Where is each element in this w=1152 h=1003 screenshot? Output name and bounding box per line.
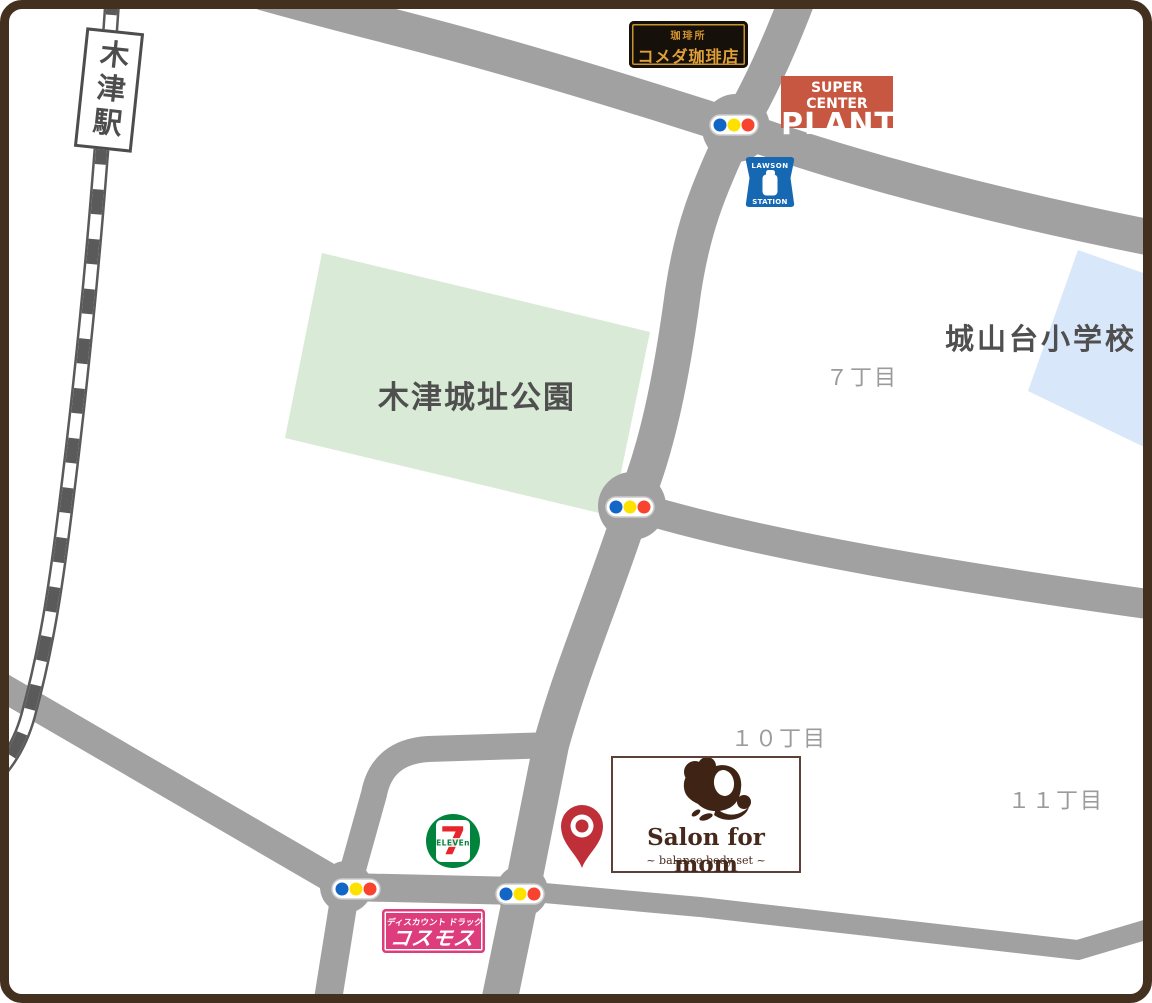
access-map: LAWSON STATION 7 ELEVEn 木津駅 木津城址公園 城山台小学… — [0, 0, 1152, 1003]
road-west-lower — [0, 680, 346, 887]
komeda-line1: 珈琲所 — [629, 27, 748, 42]
lawson-bottom-text: STATION — [752, 198, 787, 206]
map-graphics: LAWSON STATION 7 ELEVEn — [0, 0, 1152, 1003]
lawson-top-text: LAWSON — [751, 162, 788, 170]
lawson-icon: LAWSON STATION — [746, 157, 794, 207]
district-label-10: １０丁目 — [731, 721, 827, 753]
road-main-upper — [633, 128, 737, 506]
salon-subtitle: ~ balance body set ~ — [613, 854, 799, 867]
traffic-light-icon — [710, 115, 758, 135]
traffic-light-icon — [332, 879, 380, 899]
district-label-11: １１丁目 — [1008, 783, 1104, 815]
seven-eleven-icon: 7 ELEVEn — [426, 814, 480, 868]
plant-sign: SUPER CENTER PLANT — [781, 76, 893, 128]
seven-word: ELEVEn — [436, 839, 470, 848]
komeda-line2: コメダ珈琲店 — [629, 43, 748, 67]
plant-line2: PLANT — [781, 112, 893, 138]
salon-title: Salon for mom — [613, 824, 799, 878]
traffic-light-icon — [496, 884, 544, 904]
road-east-lower — [522, 891, 1152, 950]
destination-pin-icon — [561, 805, 603, 868]
road-east-upper — [737, 128, 1152, 240]
komeda-sign: 珈琲所 コメダ珈琲店 — [629, 21, 748, 68]
park-label: 木津城址公園 — [378, 372, 576, 417]
salon-logo-illustration — [648, 758, 768, 824]
district-label-7: ７丁目 — [826, 360, 898, 392]
station-label: 木津駅 — [83, 37, 135, 143]
traffic-light-icon — [606, 497, 654, 517]
salon-logo-box: Salon for mom ~ balance body set ~ — [611, 756, 801, 873]
road-east-middle — [633, 506, 1152, 606]
school-label: 城山台小学校 — [945, 316, 1137, 358]
cosmos-line2: コスモス — [382, 928, 485, 948]
cosmos-sign: ディスカウント ドラッグ コスモス — [382, 909, 485, 953]
